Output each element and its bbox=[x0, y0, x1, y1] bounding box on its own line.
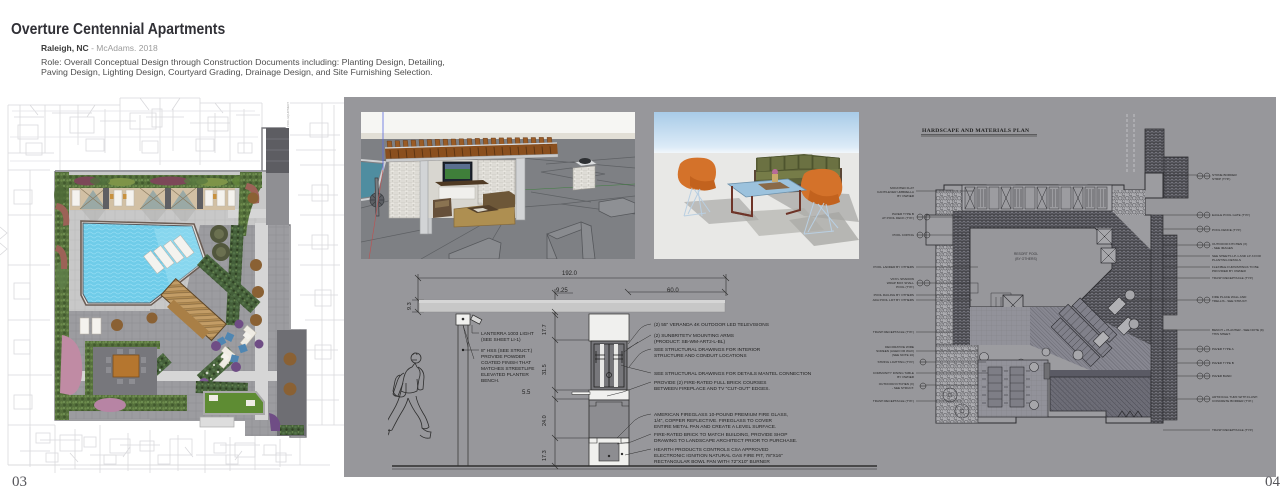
svg-text:PROVIDE POWDER: PROVIDE POWDER bbox=[481, 354, 526, 360]
svg-text:STRUCTURE AND CONDUIT LOCATION: STRUCTURE AND CONDUIT LOCATIONS bbox=[654, 353, 747, 359]
svg-text:POOL RAILING BY OTHERS: POOL RAILING BY OTHERS bbox=[874, 293, 914, 297]
svg-text:FIRE-RATED BRICK TO MATCH BUIL: FIRE-RATED BRICK TO MATCH BUILDING, PROV… bbox=[654, 432, 787, 438]
svg-text:PLANTING DETAILS: PLANTING DETAILS bbox=[1212, 258, 1241, 262]
svg-text:THIS SHEET.: THIS SHEET. bbox=[1212, 332, 1231, 336]
svg-text:PROVIDED BY OWNER: PROVIDED BY OWNER bbox=[1212, 269, 1247, 273]
svg-text:9.3: 9.3 bbox=[407, 302, 413, 310]
svg-text:CONCRETE BORDER (TYP.): CONCRETE BORDER (TYP.) bbox=[1212, 399, 1253, 403]
svg-text:TRASH RECEPTACLE (TYP.): TRASH RECEPTACLE (TYP.) bbox=[873, 330, 914, 334]
svg-text:9.25: 9.25 bbox=[556, 288, 568, 294]
svg-text:BY OWNER: BY OWNER bbox=[897, 194, 915, 198]
svg-text:PAVER TYPE B: PAVER TYPE B bbox=[1212, 361, 1234, 365]
svg-text:POOL EQUIPMENT: POOL EQUIPMENT bbox=[286, 102, 290, 127]
svg-text:POOL FENCE (TYP.): POOL FENCE (TYP.) bbox=[1212, 228, 1241, 232]
svg-text:- SEE STRUCT.: - SEE STRUCT. bbox=[892, 386, 914, 390]
svg-text:LANTERRA 1003 LIGHT: LANTERRA 1003 LIGHT bbox=[481, 331, 534, 337]
svg-text:STRIP (TYP.): STRIP (TYP.) bbox=[1212, 177, 1230, 181]
svg-text:COATED FINISH THAT: COATED FINISH THAT bbox=[481, 360, 531, 366]
svg-text:POOL (TYP.): POOL (TYP.) bbox=[896, 285, 914, 289]
svg-text:(2) SUNBRITETV MOUNTING ARMS: (2) SUNBRITETV MOUNTING ARMS bbox=[654, 333, 734, 339]
svg-text:5.5: 5.5 bbox=[522, 390, 531, 396]
svg-text:STRING LIGHTING (TYP.): STRING LIGHTING (TYP.) bbox=[877, 360, 914, 364]
svg-text:24.0: 24.0 bbox=[542, 415, 548, 426]
svg-text:(SEE NOTE 10): (SEE NOTE 10) bbox=[892, 353, 914, 357]
svg-text:(PRODUCT: SB-WM-ART2-L-BL): (PRODUCT: SB-WM-ART2-L-BL) bbox=[654, 339, 725, 345]
svg-text:AT POOL DECK (TYP.): AT POOL DECK (TYP.) bbox=[882, 216, 914, 220]
svg-text:HARDSCAPE AND MATERIALS PLA: HARDSCAPE AND MATERIALS PLAN bbox=[922, 128, 1029, 134]
svg-text:31.5: 31.5 bbox=[542, 364, 548, 375]
svg-text:ELECTRONIC IGNITION NATURAL GA: ELECTRONIC IGNITION NATURAL GAS FIRE PIT… bbox=[654, 453, 783, 459]
svg-text:BY OWNER: BY OWNER bbox=[897, 375, 915, 379]
svg-text:BETWEEN FIREPLACE AND TV "CUT-: BETWEEN FIREPLACE AND TV "CUT-OUT" EDGES… bbox=[654, 386, 770, 392]
svg-text:RESORT POOL: RESORT POOL bbox=[1014, 252, 1038, 256]
svg-text:TRASH RECEPTACLE (TYP.): TRASH RECEPTACLE (TYP.) bbox=[873, 399, 914, 403]
svg-text:1/4", COPPER REFLECTIVE. FIREG: 1/4", COPPER REFLECTIVE. FIREGLASS TO CO… bbox=[654, 418, 773, 424]
svg-text:60.0: 60.0 bbox=[667, 288, 679, 294]
svg-text:EAGLE POOL GATE (TYP.): EAGLE POOL GATE (TYP.) bbox=[1212, 213, 1250, 217]
svg-text:TRASH RECEPTACLE (TYP.): TRASH RECEPTACLE (TYP.) bbox=[1212, 428, 1253, 432]
svg-text:AMERICAN FIREGLASS 10-POUND PR: AMERICAN FIREGLASS 10-POUND PREMIUM FIRE… bbox=[654, 412, 788, 418]
svg-text:POOL COPING: POOL COPING bbox=[892, 233, 914, 237]
svg-text:17.3: 17.3 bbox=[542, 450, 548, 461]
svg-text:DRAWING TO LANDSCAPE ARCHITECT: DRAWING TO LANDSCAPE ARCHITECT PRIOR TO … bbox=[654, 438, 797, 444]
svg-text:TRELLIS - SEE STRUCT.: TRELLIS - SEE STRUCT. bbox=[1212, 299, 1248, 303]
svg-text:ADA POOL LIFT BY OTHERS: ADA POOL LIFT BY OTHERS bbox=[873, 298, 914, 302]
svg-text:8" HSS (SEE STRUCT.): 8" HSS (SEE STRUCT.) bbox=[481, 348, 533, 354]
svg-text:ENTIRE METAL PAN AND CREATE A: ENTIRE METAL PAN AND CREATE A LEVEL SURF… bbox=[654, 424, 776, 430]
svg-text:- SEE IMAGES: - SEE IMAGES bbox=[1212, 246, 1233, 250]
svg-text:(2) 55" VERANDA 4K OUTDOOR LED: (2) 55" VERANDA 4K OUTDOOR LED TELEVISIO… bbox=[654, 322, 769, 328]
svg-text:HEARTH PRODUCTS CONTROLS CSA A: HEARTH PRODUCTS CONTROLS CSA APPROVED bbox=[654, 447, 769, 453]
svg-text:PAVER BAND: PAVER BAND bbox=[1212, 374, 1232, 378]
svg-text:(BY OTHERS): (BY OTHERS) bbox=[1015, 257, 1037, 261]
svg-text:SEE STRUCTURAL DRAWINGS FOR IN: SEE STRUCTURAL DRAWINGS FOR INTERIOR bbox=[654, 347, 761, 353]
svg-text:17.7: 17.7 bbox=[542, 324, 548, 335]
svg-text:BENCH.: BENCH. bbox=[481, 378, 499, 384]
svg-text:192.0: 192.0 bbox=[562, 271, 578, 277]
svg-text:TRASH RECEPTACLE (TYP.): TRASH RECEPTACLE (TYP.) bbox=[1212, 276, 1253, 280]
svg-text:PROVIDE (2) FIRE-RATED FULL BR: PROVIDE (2) FIRE-RATED FULL BRICK COURSE… bbox=[654, 380, 766, 386]
svg-text:POOL LADDER BY OTHERS: POOL LADDER BY OTHERS bbox=[873, 265, 914, 269]
svg-text:ELEVATED PLANTER: ELEVATED PLANTER bbox=[481, 372, 529, 378]
svg-text:PAVER TYPE A: PAVER TYPE A bbox=[1212, 347, 1235, 351]
svg-text:SEE STRUCTURAL DRAWINGS FOR DE: SEE STRUCTURAL DRAWINGS FOR DETAILS MANT… bbox=[654, 371, 812, 377]
svg-text:RECTANGULAR BOWL PAN WITH 72"X: RECTANGULAR BOWL PAN WITH 72"X10" BURNER bbox=[654, 459, 770, 465]
svg-text:(SEE SHEET LI-1): (SEE SHEET LI-1) bbox=[481, 337, 521, 343]
svg-text:MATCHES STREETLIFE: MATCHES STREETLIFE bbox=[481, 366, 534, 372]
